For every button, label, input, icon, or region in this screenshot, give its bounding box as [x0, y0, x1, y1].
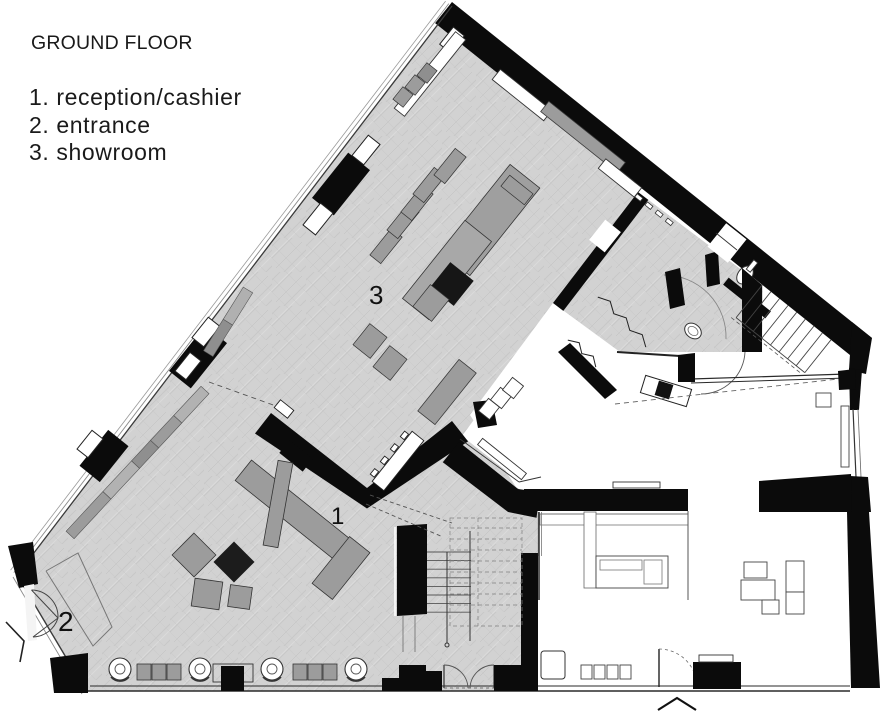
svg-text:1: 1	[331, 503, 344, 530]
svg-text:3. showroom: 3. showroom	[29, 139, 167, 165]
svg-text:2: 2	[58, 606, 74, 637]
svg-text:3: 3	[369, 280, 383, 310]
svg-text:1. reception/cashier: 1. reception/cashier	[29, 84, 242, 110]
svg-text:2. entrance: 2. entrance	[29, 112, 151, 138]
svg-text:GROUND FLOOR: GROUND FLOOR	[31, 32, 193, 54]
